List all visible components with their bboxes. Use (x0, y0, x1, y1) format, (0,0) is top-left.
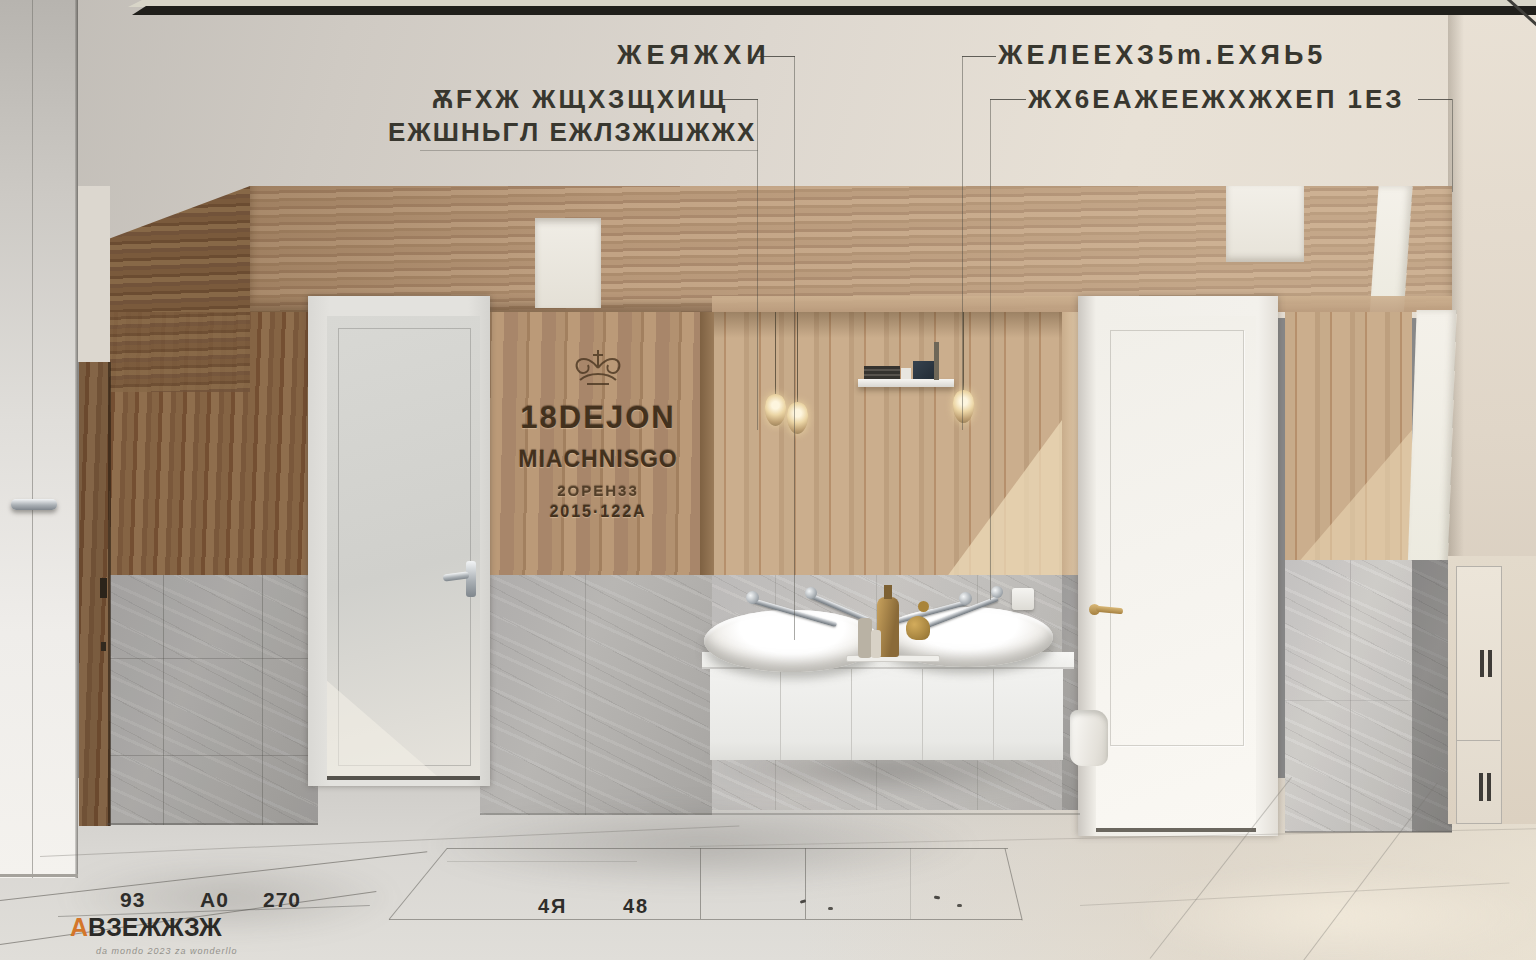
grout-line (1350, 560, 1351, 832)
grout-line (163, 575, 164, 825)
door-left-panel-line (338, 328, 471, 766)
leader-line (420, 150, 758, 151)
recess-top-shadow (714, 312, 1062, 338)
floor-dim-line (910, 848, 911, 919)
annotation-label-left-top: ЖЕЯЖХИ (617, 40, 771, 71)
niche-divider (1457, 740, 1500, 741)
cabinet-seam (922, 666, 923, 760)
leader-line (962, 56, 963, 430)
ceiling-strip-shadow (132, 6, 1536, 15)
floor-dim-line (447, 861, 637, 862)
tile-wall-right (1285, 560, 1412, 832)
wood-door-hinge (100, 578, 107, 598)
annotation-label-left-line1: ѪFХЖ ЖЩХЗЩХИЩ (432, 84, 728, 115)
floor-speck (828, 907, 833, 910)
door-right-bottom-gap (1096, 828, 1256, 832)
door-right-panel-line (1110, 330, 1244, 746)
door-left-bottom-gap (327, 776, 480, 780)
tile-wall-left (107, 575, 318, 825)
leader-line (990, 99, 1026, 100)
wall-logo-line4: 2015·122A (488, 503, 708, 521)
wall-logo-line3: 2OPEH33 (488, 482, 708, 499)
leader-line (757, 99, 758, 430)
annotation-label-right-top: ЖЕЛЕЕХЗ5m.ЕХЯЬ5 (998, 40, 1326, 71)
bird-figurine (906, 616, 930, 640)
gray-bottle (858, 618, 872, 658)
towel (1070, 710, 1108, 766)
tile-wall-center-left (480, 575, 712, 815)
bottle-neck (884, 585, 892, 599)
watermark-brand: ЗЕЖЖЗЖ (106, 913, 221, 941)
grout-line (1285, 700, 1412, 701)
bird-figurine-head (918, 601, 929, 612)
closet-handle (11, 499, 57, 510)
closet-edge (75, 0, 78, 878)
shelf-brush (934, 342, 939, 380)
closet (0, 0, 78, 878)
annotation-label-left-line2: ЕЖШНЬΓЛ ЕЖЛЗЖШЖЖХ (388, 117, 756, 148)
grout-line (262, 575, 263, 825)
floor-dimension-label: 48 (623, 895, 649, 918)
floor-dimension-label: A0 (200, 888, 229, 912)
floor-dim-line (700, 848, 701, 919)
wall-base-line (107, 823, 318, 825)
soap-dispenser-box (1012, 588, 1034, 610)
pendant-cord (963, 312, 964, 392)
watermark-logo-b: B (88, 913, 106, 941)
floor-dimension-label: 4Я (538, 895, 568, 918)
closet-seam (32, 0, 33, 878)
vessel-sink-left (704, 610, 880, 672)
niche-handle (1480, 650, 1484, 677)
floor-speck (957, 904, 962, 907)
faucet-flange (805, 587, 817, 599)
cabinet-seam (780, 666, 781, 760)
wall-logo-crest-icon (565, 346, 631, 398)
cabinet-seam (993, 666, 994, 760)
niche-handle (1487, 773, 1491, 801)
door-left-handle-plate (466, 561, 476, 597)
floor-dimension-label: 270 (263, 888, 301, 912)
niche-handle (1479, 773, 1483, 801)
wall-logo-title: 18DEJON (488, 400, 708, 436)
wall-logo-subtitle: MIACHNISGO (488, 446, 708, 473)
watermark: ABЗЕЖЖЗЖ (70, 913, 222, 942)
leader-line (990, 99, 991, 600)
vanity-cabinet (710, 666, 1063, 760)
grout-line (107, 658, 318, 659)
watermark-tagline: da mondo 2023 za wonderllo (96, 946, 238, 956)
tile-corner-face (1412, 560, 1452, 832)
shelf-books (864, 366, 900, 379)
bulkhead-notch-right (1226, 186, 1304, 262)
floor-dim-line (805, 848, 806, 919)
watermark-logo-a: A (70, 913, 88, 941)
annotated-bathroom-render: 18DEJON MIACHNISGO 2OPEH33 2015·122A (0, 0, 1536, 960)
wall-shelf (858, 379, 954, 387)
cabinet-seam (851, 666, 852, 760)
faucet-flange (991, 586, 1003, 598)
grout-line (107, 755, 318, 756)
floor-dimension-label: 93 (120, 888, 145, 912)
pendant-cord (775, 312, 776, 396)
faucet-flange (959, 592, 972, 605)
wood-door-gap (108, 362, 111, 826)
faucet-flange (746, 591, 759, 604)
leader-line (1452, 99, 1453, 192)
bulkhead-notch-left (535, 218, 601, 308)
ceiling-light-strip (128, 0, 1536, 7)
leader-line (794, 56, 795, 640)
grout-line (585, 575, 586, 815)
pendant-cord (797, 312, 798, 404)
annotation-label-right-second: ЖХ6ЕАЖЕЕЖХЖХЕП 1ЕЗ (1028, 84, 1405, 115)
leader-line (1418, 99, 1452, 100)
niche-handle (1488, 650, 1492, 677)
shelf-bottle (901, 368, 911, 379)
walnut-band-lower (107, 312, 250, 392)
wall-patch-left (78, 186, 110, 362)
wood-door-lock (101, 642, 106, 651)
floor-dim-line (389, 919, 1022, 920)
wall-logo: 18DEJON MIACHNISGO 2OPEH33 2015·122A (488, 346, 708, 530)
floor-dim-line (447, 848, 1008, 849)
shelf-box (913, 361, 935, 379)
leader-line (962, 56, 996, 57)
small-bottle (871, 630, 881, 658)
